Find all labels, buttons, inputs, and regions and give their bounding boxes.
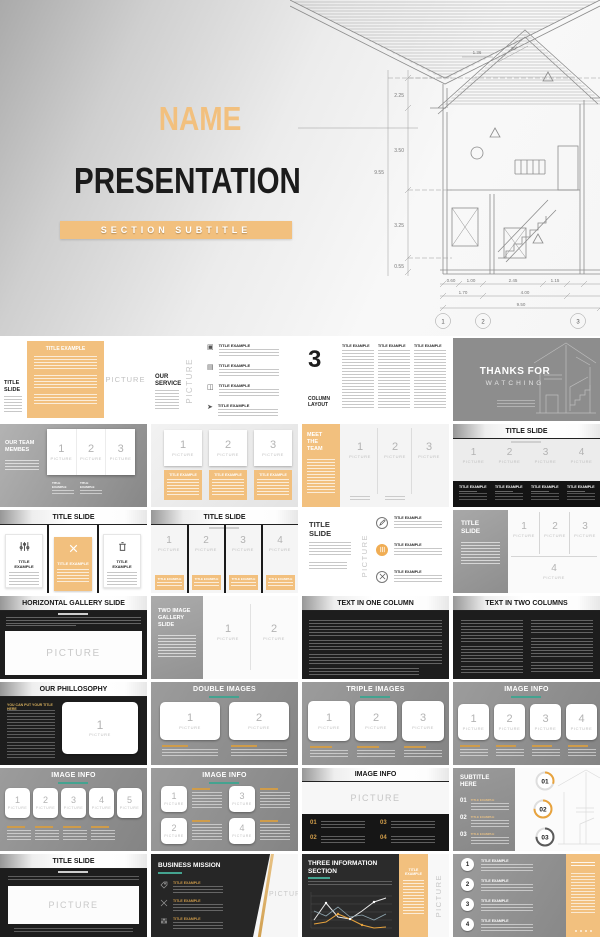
dim-label: 0.55 xyxy=(394,264,404,270)
picture-panel: 1PICTURE 2PICTURE 3PICTURE xyxy=(47,429,135,475)
slide-thumbnail-18-double-images[interactable]: DOUBLE IMAGES 1PICTURE 2PICTURE xyxy=(151,682,298,765)
picture-vertical-label: PICTURE xyxy=(360,534,369,577)
slide-thumbnail-25-title-slide-picture[interactable]: TITLE SLIDE PICTURE xyxy=(0,854,147,937)
caption-heading xyxy=(357,746,379,748)
orange-band xyxy=(566,854,600,937)
accent-line xyxy=(360,696,390,698)
caption-placeholder xyxy=(260,792,290,810)
text-placeholder xyxy=(4,396,22,414)
picture-cell: 1PICTURE xyxy=(510,522,538,538)
picture-cell: 3PICTURE xyxy=(529,448,562,464)
text-column: TITLE EXAMPLE xyxy=(378,344,410,410)
text-placeholder xyxy=(531,662,593,674)
text-placeholder xyxy=(309,668,419,675)
picture-area: PICTURE xyxy=(5,631,142,675)
picture-card: 2PICTURE xyxy=(494,704,525,740)
picture-card: 2PICTURE xyxy=(355,701,397,741)
accent-line xyxy=(58,782,88,784)
tag-icon xyxy=(160,881,168,889)
picture-cell: 2PICTURE xyxy=(190,536,222,552)
text-placeholder xyxy=(497,400,535,408)
caption-heading xyxy=(260,820,278,822)
slide-title: TITLE SLIDE xyxy=(309,520,343,538)
grid-marker: 2 xyxy=(481,320,485,326)
text-placeholder xyxy=(309,620,442,636)
orange-box: TITLE EXAMPLE xyxy=(164,470,202,500)
picture-cell: 4PICTURE xyxy=(565,448,598,464)
picture-card: 1PICTURE xyxy=(160,702,220,740)
divider xyxy=(411,428,412,494)
orange-panel: TITLE EXAMPLE xyxy=(27,341,104,418)
text-placeholder xyxy=(308,881,392,886)
slide-thumbnail-10-title-slide-4col-orange[interactable]: TITLE SLIDE 1PICTURE 2PICTURE 3PICTURE 4… xyxy=(151,510,298,593)
caption-heading xyxy=(310,746,332,748)
slide-header: TEXT IN TWO COLUMNS xyxy=(453,596,600,611)
dim-label: 1.00 xyxy=(467,278,476,283)
band-title-placeholder xyxy=(571,862,595,868)
slide-thumbnail-9-title-slide-cards[interactable]: TITLE SLIDE TITLE EXAMPLE TITLE EXAMPLE … xyxy=(0,510,147,593)
dim-label: 4.00 xyxy=(521,290,530,295)
picture-card: 1PICTURE xyxy=(161,786,187,812)
text-placeholder xyxy=(309,562,347,571)
orange-footer: TITLE EXAMPLE xyxy=(192,575,221,590)
text-placeholder xyxy=(8,876,139,882)
text-placeholder xyxy=(158,635,196,657)
picture-card: 1PICTURE xyxy=(458,704,489,740)
slide-title: IMAGE INFO xyxy=(453,686,600,693)
template-preview-sheet: NAME PRESENTATION SECTION SUBTITLE xyxy=(0,0,600,938)
numbered-item: 4 TITLE EXAMPLE xyxy=(461,918,533,931)
picture-area: PICTURE xyxy=(302,782,449,814)
slide-thumbnail-28-numbered-list[interactable]: 1 TITLE EXAMPLE 2 TITLE EXAMPLE 3 TITLE … xyxy=(453,854,600,937)
picture-label: PICTURE xyxy=(46,648,100,659)
text-column: TITLE EXAMPLE xyxy=(342,344,374,410)
slide-thumbnail-16-text-two-columns[interactable]: TEXT IN TWO COLUMNS xyxy=(453,596,600,679)
picture-label: PICTURE xyxy=(269,891,298,898)
text-placeholder xyxy=(461,620,523,642)
caption-heading xyxy=(192,820,210,822)
numbered-item: 3 TITLE EXAMPLE xyxy=(461,898,533,911)
slide-title: IMAGE INFO xyxy=(151,772,298,779)
caption-placeholder xyxy=(404,750,442,758)
text-placeholder xyxy=(403,880,424,914)
hero-cover-slide: NAME PRESENTATION SECTION SUBTITLE xyxy=(0,0,600,336)
accent-line xyxy=(308,877,330,879)
numbered-item: 03 xyxy=(380,820,435,830)
caption-placeholder xyxy=(532,749,560,758)
divider xyxy=(97,525,99,593)
caption-placeholder xyxy=(7,830,31,842)
service-item: ◫TITLE EXAMPLE xyxy=(207,383,279,397)
thanks-title: THANKS FOR xyxy=(467,366,563,377)
accent-line xyxy=(209,696,239,698)
picture-cell: 2PICTURE xyxy=(379,442,411,459)
list-item: 03TITLE EXAMPLE xyxy=(460,832,509,844)
pen-icon xyxy=(376,517,388,529)
grid-marker: 3 xyxy=(576,320,580,326)
divider xyxy=(261,525,263,593)
caption-placeholder xyxy=(568,749,596,758)
caption-heading xyxy=(260,788,278,790)
caption-placeholder xyxy=(35,830,59,842)
divider xyxy=(224,525,226,593)
text-placeholder xyxy=(461,542,500,566)
text-placeholder xyxy=(155,390,179,410)
picture-card: 3PICTURE xyxy=(402,701,444,741)
caption-placeholder xyxy=(91,830,115,842)
orange-footer: TITLE EXAMPLE xyxy=(229,575,258,590)
footer-item: TITLE EXAMPLE xyxy=(567,485,595,501)
sliders-icon xyxy=(376,544,388,556)
picture-card: 1PICTURE xyxy=(62,702,138,754)
picture-cell: 4PICTURE xyxy=(510,564,598,580)
slide-thumbnail-3-column-layout[interactable]: 3 COLUMN LAYOUT TITLE EXAMPLE TITLE EXAM… xyxy=(302,338,449,421)
column: 3PICTURE TITLE EXAMPLE xyxy=(254,430,292,500)
text-placeholder xyxy=(7,742,55,758)
slide-thumbnail-21-image-info-5[interactable]: IMAGE INFO 1PICTURE 2PICTURE 3PICTURE 4P… xyxy=(0,768,147,851)
slide-header: HORIZONTAL GALLERY SLIDE xyxy=(0,596,147,611)
caption-heading xyxy=(496,745,516,747)
caption-placeholder xyxy=(192,792,222,810)
header-subline xyxy=(511,441,541,443)
picture-card: 3PICTURE xyxy=(229,786,255,812)
picture-label: PICTURE xyxy=(350,793,400,803)
sliders-icon xyxy=(160,917,168,925)
slide-title: TITLE SLIDE xyxy=(461,520,491,536)
gray-panel: TWO IMAGE GALLERY SLIDE xyxy=(151,596,203,679)
footer-item: TITLE EXAMPLE xyxy=(531,485,559,501)
picture-cell: 3PICTURE xyxy=(413,442,445,459)
slide-thumbnail-1-title-slide[interactable]: TITLE SLIDE TITLE EXAMPLE PICTURE xyxy=(0,338,147,421)
architecture-blueprint: 2.25 3.50 3.25 0.55 9.55 1.36 30° 0.60 1… xyxy=(290,0,600,332)
column: 1PICTURE TITLE EXAMPLE xyxy=(164,430,202,500)
side-title: TITLE SLIDE xyxy=(4,380,24,393)
picture-card: 1PICTURE xyxy=(164,430,202,466)
picture-card: 3PICTURE xyxy=(530,704,561,740)
divider xyxy=(511,556,597,557)
svg-text:03: 03 xyxy=(541,835,549,842)
picture-cell: 2PICTURE xyxy=(77,429,107,475)
slide-header: TITLE SLIDE xyxy=(0,854,147,869)
caption-placeholder xyxy=(385,496,405,501)
slide-thumbnail-23-image-info-numbers[interactable]: IMAGE INFO PICTURE 01 02 03 04 xyxy=(302,768,449,851)
black-footer-band: TITLE EXAMPLE TITLE EXAMPLE TITLE EXAMPL… xyxy=(453,481,600,507)
text-placeholder xyxy=(7,710,55,738)
picture-cell: 1PICTURE xyxy=(207,624,249,641)
accent-line xyxy=(209,782,239,784)
caption-placeholder xyxy=(350,496,370,501)
orange-sidebar: MEET THE TEAM xyxy=(302,424,340,507)
grid-marker: 1 xyxy=(441,320,445,326)
hero-presentation-title: PRESENTATION xyxy=(74,160,301,202)
caption-heading xyxy=(460,745,480,747)
blueprint-sketch xyxy=(556,768,600,851)
slide-header: TITLE SLIDE xyxy=(151,510,298,525)
text-placeholder xyxy=(5,460,39,470)
progress-ring-02: 02 xyxy=(532,798,554,820)
picture-label: PICTURE xyxy=(104,375,147,384)
line-chart xyxy=(306,890,396,934)
list-item: 01TITLE EXAMPLE xyxy=(460,798,509,810)
column: 2PICTURE TITLE EXAMPLE xyxy=(209,430,247,500)
slide-title: SUBTITLE HERE xyxy=(460,775,492,789)
slide-thumbnail-5-our-team[interactable]: OUR TEAM MEMBES 1PICTURE 2PICTURE 3PICTU… xyxy=(0,424,147,507)
numbered-item: 1 TITLE EXAMPLE xyxy=(461,858,533,871)
picture-cell: 1PICTURE xyxy=(457,448,490,464)
picture-cell: 2PICTURE xyxy=(253,624,295,641)
slide-thumbnail-8-title-slide-4col[interactable]: TITLE SLIDE 1PICTURE 2PICTURE 3PICTURE 4… xyxy=(453,424,600,507)
tools-icon xyxy=(160,899,168,907)
numbered-item: 02 xyxy=(310,835,365,845)
service-item: ▣TITLE EXAMPLE xyxy=(207,343,279,357)
header-subline xyxy=(58,613,88,615)
hero-subtitle-bar: SECTION SUBTITLE xyxy=(60,221,292,239)
number-circle: 3 xyxy=(461,898,474,911)
slide-title: IMAGE INFO xyxy=(0,772,147,779)
picture-card: 3PICTURE xyxy=(61,788,86,818)
slide-thumbnail-7-meet-the-team[interactable]: MEET THE TEAM 1PICTURE 2PICTURE 3PICTURE xyxy=(302,424,449,507)
slide-thumbnail-20-image-info[interactable]: IMAGE INFO 1PICTURE 2PICTURE 3PICTURE 4P… xyxy=(453,682,600,765)
text-placeholder xyxy=(531,638,593,658)
slide-thumbnail-17-our-phillosophy[interactable]: OUR PHILLOSOPHY YOU CAN PUT YOUR TITLE H… xyxy=(0,682,147,765)
slide-header: TITLE SLIDE xyxy=(0,510,147,525)
number-circle: 4 xyxy=(461,918,474,931)
trash-icon xyxy=(117,541,128,552)
caption-heading xyxy=(91,826,109,828)
thanks-subtitle: WATCHING xyxy=(467,380,563,387)
footer-item: TITLE EXAMPLE xyxy=(495,485,523,501)
band-title: TITLE EXAMPLE xyxy=(403,868,424,876)
pagination-dots xyxy=(566,930,600,932)
text-placeholder xyxy=(461,666,523,674)
picture-label: PICTURE xyxy=(48,900,98,910)
dim-label: 2.45 xyxy=(509,278,518,283)
slide-thumbnail-22-image-info-2x2[interactable]: IMAGE INFO 1PICTURE 2PICTURE 3PICTURE 4P… xyxy=(151,768,298,851)
picture-vertical-label: PICTURE xyxy=(434,874,443,917)
text-placeholder xyxy=(309,654,442,664)
divider xyxy=(539,512,540,554)
svg-text:01: 01 xyxy=(541,779,549,786)
dim-label: 1.70 xyxy=(459,290,468,295)
icon-item: TITLE EXAMPLE xyxy=(376,516,442,529)
tools-icon xyxy=(376,571,388,583)
slide-title: MEET THE TEAM xyxy=(307,432,333,453)
divider xyxy=(569,512,570,554)
tools-icon xyxy=(68,543,79,554)
slide-thumbnail-24-subtitle-rings[interactable]: SUBTITLE HERE 01TITLE EXAMPLE 02TITLE EX… xyxy=(453,768,600,851)
text-placeholder xyxy=(307,459,335,493)
orange-band: TITLE EXAMPLE xyxy=(399,854,428,937)
caption-heading xyxy=(35,826,53,828)
slide-thumbnail-15-text-one-column[interactable]: TEXT IN ONE COLUMN xyxy=(302,596,449,679)
picture-card: 5PICTURE xyxy=(117,788,142,818)
gray-panel: TITLE SLIDE xyxy=(453,510,508,593)
picture-card: 1PICTURE xyxy=(5,788,30,818)
slide-thumbnail-2-our-service[interactable]: OUR SERVICE PICTURE ▣TITLE EXAMPLE ▤TITL… xyxy=(151,338,298,421)
dim-label: 3.50 xyxy=(394,148,404,154)
divider xyxy=(187,525,189,593)
info-card: TITLE EXAMPLE xyxy=(103,534,141,588)
picture-area: PICTURE xyxy=(8,886,139,924)
text-placeholder xyxy=(461,646,523,662)
text-placeholder xyxy=(34,394,97,405)
accent-line xyxy=(511,696,541,698)
divider xyxy=(250,604,251,670)
list-item: 02TITLE EXAMPLE xyxy=(460,815,509,827)
orange-box: TITLE EXAMPLE xyxy=(209,470,247,500)
dim-label: 3.25 xyxy=(394,223,404,229)
picture-card: 1PICTURE xyxy=(308,701,350,741)
icon-item: TITLE EXAMPLE xyxy=(376,543,442,556)
accent-line xyxy=(158,872,182,874)
slide-header: TITLE SLIDE xyxy=(453,424,600,439)
dim-label: 1.36 xyxy=(473,50,482,55)
info-card: TITLE EXAMPLE xyxy=(5,534,43,588)
picture-cell: 1PICTURE xyxy=(153,536,185,552)
caption-placeholder xyxy=(63,830,87,842)
text-placeholder xyxy=(34,356,97,370)
text-placeholder xyxy=(6,625,76,628)
number-circle: 1 xyxy=(461,858,474,871)
black-band: 01 02 03 04 xyxy=(302,814,449,851)
hero-subtitle: SECTION SUBTITLE xyxy=(101,225,252,235)
caption-placeholder xyxy=(231,749,287,758)
caption-placeholder xyxy=(192,824,222,842)
progress-ring-03: 03 xyxy=(534,826,556,848)
orange-box: TITLE EXAMPLE xyxy=(254,470,292,500)
text-placeholder xyxy=(309,542,351,556)
picture-card: 3PICTURE xyxy=(254,430,292,466)
caption-placeholder xyxy=(310,750,348,758)
panel-title: TITLE EXAMPLE xyxy=(27,346,104,352)
picture-cell: 1PICTURE xyxy=(47,429,77,475)
picture-card: 2PICTURE xyxy=(33,788,58,818)
picture-card: 4PICTURE xyxy=(229,818,255,844)
slide-title: TRIPLE IMAGES xyxy=(302,686,449,693)
picture-cell: 3PICTURE xyxy=(227,536,259,552)
text-placeholder xyxy=(309,640,442,650)
text-placeholder xyxy=(531,620,593,634)
caption-heading xyxy=(63,826,81,828)
text-placeholder xyxy=(34,375,97,389)
slide-header: OUR PHILLOSOPHY xyxy=(0,682,147,697)
big-number: 3 xyxy=(308,346,321,374)
mission-item: TITLE EXAMPLE xyxy=(160,917,223,929)
service-item: ▤TITLE EXAMPLE xyxy=(207,363,279,377)
mission-item: TITLE EXAMPLE xyxy=(160,899,223,911)
orange-footer: TITLE EXAMPLE xyxy=(266,575,295,590)
caption-heading xyxy=(162,745,188,747)
slide-title: BUSINESS MISSION xyxy=(158,862,220,869)
slide-title: TWO IMAGE GALLERY SLIDE xyxy=(158,608,194,629)
caption-heading xyxy=(568,745,588,747)
slide-title: OUR SERVICE xyxy=(155,374,183,388)
orange-footer: TITLE EXAMPLE xyxy=(155,575,184,590)
slide-title: THREE INFORMATION SECTION xyxy=(308,860,388,876)
picture-card: 2PICTURE xyxy=(209,430,247,466)
caption-placeholder xyxy=(260,824,290,842)
icon-item: TITLE EXAMPLE xyxy=(376,570,442,583)
mission-item: TITLE EXAMPLE xyxy=(160,881,223,893)
white-strip: PICTURE xyxy=(428,854,449,937)
caption-placeholder xyxy=(460,749,488,758)
caption: TITLE EXAMPLE xyxy=(80,481,102,496)
picture-card: 4PICTURE xyxy=(566,704,597,740)
caption-heading xyxy=(231,745,257,747)
presentation-board-icon: ▣ xyxy=(207,343,214,351)
rocket-icon: ➤ xyxy=(207,403,213,411)
dim-label: 1.15 xyxy=(551,278,560,283)
caption-placeholder xyxy=(357,750,395,758)
text-placeholder xyxy=(571,873,595,915)
divider xyxy=(47,525,49,593)
slide-header: IMAGE INFO xyxy=(302,768,449,782)
header-subline xyxy=(58,871,88,873)
caption: TITLE EXAMPLE xyxy=(52,481,74,496)
picture-vertical-label: PICTURE xyxy=(185,358,194,404)
text-placeholder xyxy=(6,617,141,624)
picture-cell: 3PICTURE xyxy=(106,429,135,475)
slide-thumbnail-11-title-slide-icons[interactable]: TITLE SLIDE PICTURE TITLE EXAMPLE TITLE … xyxy=(302,510,449,593)
text-column: TITLE EXAMPLE xyxy=(414,344,446,410)
slide-thumbnail-27-three-information[interactable]: THREE INFORMATION SECTION TITLE EXAMPLE … xyxy=(302,854,449,937)
text-placeholder xyxy=(14,928,133,934)
picture-cell: 1PICTURE xyxy=(344,442,376,459)
picture-cell: 2PICTURE xyxy=(541,522,569,538)
picture-cell: 2PICTURE xyxy=(493,448,526,464)
slide-title: OUR TEAM MEMBES xyxy=(5,440,39,454)
picture-cell: 4PICTURE xyxy=(264,536,296,552)
angle-label: 30° xyxy=(511,46,518,51)
gray-panel: SUBTITLE HERE 01TITLE EXAMPLE 02TITLE EX… xyxy=(453,768,515,851)
divider xyxy=(377,428,378,494)
slide-thumbnail-26-business-mission[interactable]: PICTURE BUSINESS MISSION TITLE EXAMPLE T… xyxy=(151,854,298,937)
info-card-orange: TITLE EXAMPLE xyxy=(54,537,92,591)
sliders-icon xyxy=(19,541,30,552)
number-circle: 2 xyxy=(461,878,474,891)
footer-item: TITLE EXAMPLE xyxy=(459,485,487,501)
layers-icon: ▤ xyxy=(207,363,214,371)
caption-placeholder xyxy=(162,749,218,758)
picture-cell: 3PICTURE xyxy=(571,522,599,538)
money-bag-icon: ◫ xyxy=(207,383,214,391)
slide-thumbnail-13-horizontal-gallery[interactable]: HORIZONTAL GALLERY SLIDE PICTURE xyxy=(0,596,147,679)
numbered-item: 04 xyxy=(380,835,435,845)
slide-thumbnail-19-triple-images[interactable]: TRIPLE IMAGES 1PICTURE 2PICTURE 3PICTURE xyxy=(302,682,449,765)
service-item: ➤TITLE EXAMPLE xyxy=(207,403,278,417)
slide-thumbnail-14-two-image-gallery[interactable]: TWO IMAGE GALLERY SLIDE 1PICTURE 2PICTUR… xyxy=(151,596,298,679)
hero-name-title: NAME xyxy=(132,100,268,138)
progress-ring-01: 01 xyxy=(534,770,556,792)
numbered-item: 2 TITLE EXAMPLE xyxy=(461,878,533,891)
dim-label: 9.50 xyxy=(517,302,526,307)
slide-header: TEXT IN ONE COLUMN xyxy=(302,596,449,611)
dim-label: 9.55 xyxy=(374,170,384,176)
svg-text:02: 02 xyxy=(539,807,547,814)
caption-heading xyxy=(532,745,552,747)
slide-title: COLUMN LAYOUT xyxy=(308,396,334,408)
slide-thumbnail-6-three-columns[interactable]: 1PICTURE TITLE EXAMPLE 2PICTURE TITLE EX… xyxy=(151,424,298,507)
caption-heading xyxy=(192,788,210,790)
dim-label: 0.60 xyxy=(447,278,456,283)
picture-card: 2PICTURE xyxy=(161,818,187,844)
slide-thumbnail-4-thanks-for-watching[interactable]: THANKS FOR WATCHING xyxy=(453,338,600,421)
slide-thumbnail-12-title-slide-gray[interactable]: TITLE SLIDE 1PICTURE 2PICTURE 3PICTURE 4… xyxy=(453,510,600,593)
caption-heading xyxy=(404,746,426,748)
dim-label: 2.25 xyxy=(394,93,404,99)
slide-title: DOUBLE IMAGES xyxy=(151,686,298,693)
slide-thumbnail-grid: TITLE SLIDE TITLE EXAMPLE PICTURE OUR SE… xyxy=(0,336,600,937)
